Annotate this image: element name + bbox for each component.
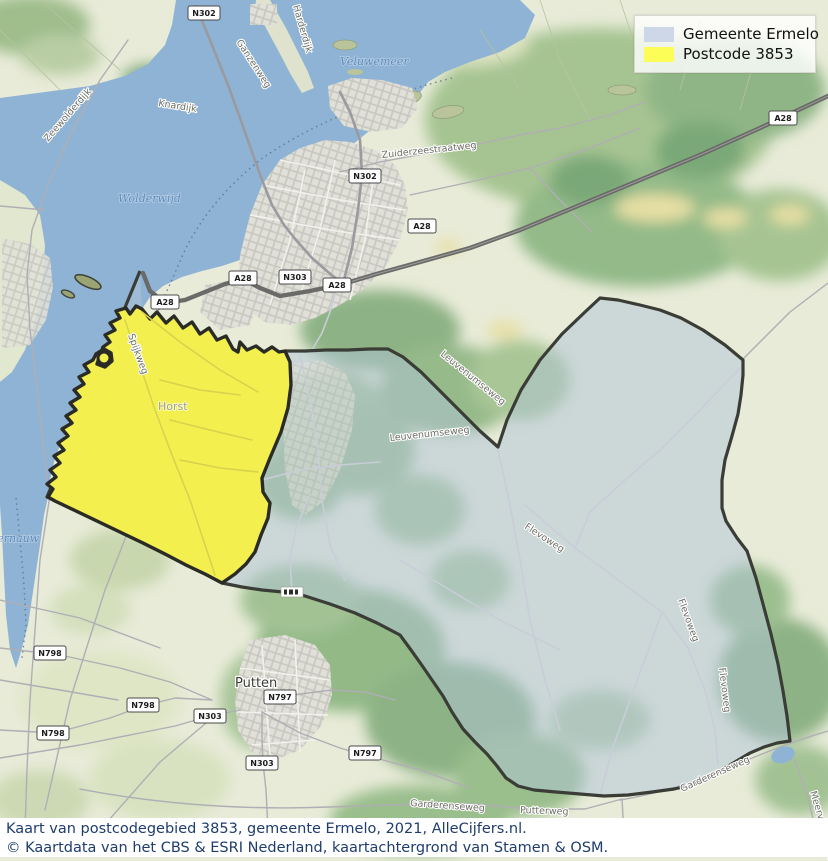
- legend-label-postcode: Postcode 3853: [683, 45, 794, 63]
- town-label-putten: Putten: [235, 676, 277, 691]
- svg-text:N798: N798: [38, 649, 62, 658]
- shield-n798-1: N798: [34, 646, 66, 660]
- svg-text:A28: A28: [156, 298, 174, 307]
- caption-attribution: © Kaartdata van het CBS & ESRI Nederland…: [6, 839, 828, 858]
- svg-text:N797: N797: [268, 693, 291, 702]
- shield-a28-south: A28: [323, 278, 351, 292]
- shield-n303-putten-west: N303: [194, 709, 226, 723]
- harbor-grid: [250, 4, 277, 25]
- svg-text:N798: N798: [131, 701, 155, 710]
- shield-a28-east: A28: [408, 219, 436, 233]
- water-label-veluwemeer: Veluwemeer: [340, 55, 409, 68]
- shield-a28-coast: A28: [151, 295, 179, 309]
- legend-label-gemeente: Gemeente Ermelo: [683, 25, 819, 43]
- caption-title: Kaart van postcodegebied 3853, gemeente …: [6, 820, 828, 839]
- postcode-color-swatch: [644, 47, 674, 62]
- gemeente-color-swatch: [644, 27, 674, 42]
- svg-text:N798: N798: [41, 729, 65, 738]
- svg-text:N302: N302: [192, 9, 215, 18]
- shield-n798-3: N798: [37, 726, 69, 740]
- map-caption: Kaart van postcodegebied 3853, gemeente …: [0, 818, 828, 857]
- shield-a28-northeast: A28: [769, 111, 797, 125]
- road-label-putterweg: Putterweg: [520, 805, 569, 818]
- shield-n797-1: N797: [264, 690, 296, 704]
- hamlet-label-horst: Horst: [158, 400, 188, 413]
- svg-text:A28: A28: [328, 281, 346, 290]
- svg-text:N797: N797: [353, 749, 376, 758]
- legend-row-postcode: Postcode 3853: [644, 45, 806, 63]
- shield-n302-top: N302: [188, 6, 220, 20]
- svg-text:N303: N303: [198, 712, 221, 721]
- svg-text:A28: A28: [234, 274, 252, 283]
- shield-n302-town: N302: [349, 169, 381, 183]
- map-screenshot: Veluwemeer Wolderwijd Nuldernauw Knardij…: [0, 0, 828, 861]
- shield-n303-harderwijk: N303: [279, 270, 311, 284]
- shield-n303-putten-south: N303: [246, 756, 278, 770]
- shield-a28-west: A28: [229, 271, 257, 285]
- svg-text:N303: N303: [283, 273, 306, 282]
- shield-n797-2: N797: [349, 746, 381, 760]
- map-legend: Gemeente Ermelo Postcode 3853: [634, 15, 816, 73]
- svg-text:A28: A28: [774, 114, 792, 123]
- illegible-label-box: [281, 587, 303, 597]
- water-label-nuldernauw: Nuldernauw: [0, 532, 40, 545]
- marina-loop: [98, 352, 110, 364]
- shield-n798-2: N798: [127, 698, 159, 712]
- legend-row-gemeente: Gemeente Ermelo: [644, 25, 806, 43]
- svg-text:N302: N302: [353, 172, 376, 181]
- water-label-wolderwijd: Wolderwijd: [118, 192, 181, 205]
- svg-text:N303: N303: [250, 759, 273, 768]
- map-canvas[interactable]: Veluwemeer Wolderwijd Nuldernauw Knardij…: [0, 0, 828, 861]
- svg-text:A28: A28: [413, 222, 431, 231]
